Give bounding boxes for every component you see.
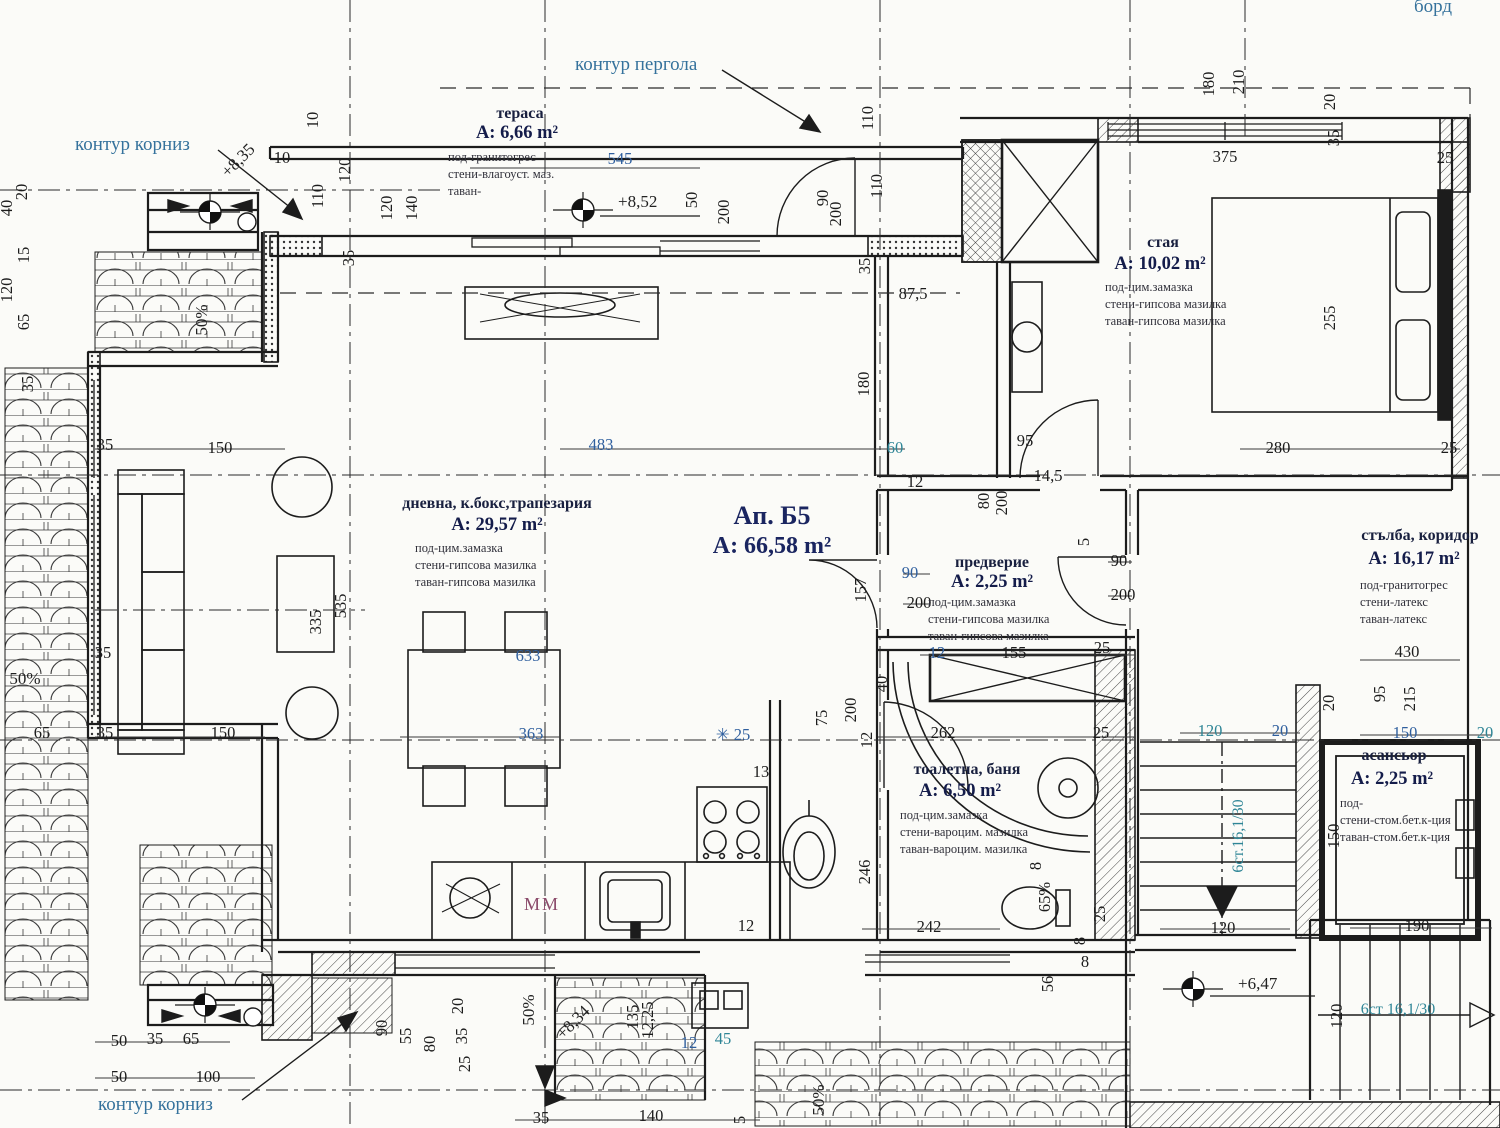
dimension-text: 8 — [1081, 952, 1089, 971]
room-area: A: 29,57 m² — [451, 515, 543, 535]
dimension-text: 157 — [851, 578, 870, 603]
room-finish: таван-гипсова мазилка — [928, 629, 1049, 643]
dimension-text: 65% — [1035, 882, 1054, 913]
room-area: A: 10,02 m² — [1114, 254, 1206, 274]
dimension-text: 20 — [448, 998, 467, 1015]
callout-label: контур корниз — [75, 134, 190, 155]
room-finish: под-цим.замазка — [415, 541, 503, 555]
dimension-text: 140 — [639, 1106, 664, 1125]
dimension-text: 12 — [738, 916, 755, 935]
dimension-text: 35 — [452, 1028, 471, 1045]
dimension-text: 25 — [1090, 906, 1109, 923]
dimension-text: 12,25 — [638, 1001, 657, 1038]
dimension-text: 5 — [730, 1116, 749, 1124]
dimension-text: 5 — [1074, 538, 1093, 546]
room-finish: таван-гипсова мазилка — [1105, 314, 1226, 328]
apartment-title: Ап. Б5 — [734, 501, 811, 530]
dimension-text: 20 — [1319, 695, 1338, 712]
room-name: асансьор — [1362, 747, 1427, 764]
dimension-text: 215 — [1400, 687, 1419, 712]
dimension-text: 20 — [1477, 723, 1494, 742]
room-name: дневна, к.бокс,трапезария — [402, 495, 592, 512]
dimension-text: 90 — [902, 563, 919, 582]
stair-note: 6ст.16,1/30 — [1230, 799, 1247, 872]
dimension-text: 483 — [589, 435, 614, 454]
dimension-text: 35 — [147, 1029, 164, 1048]
dimension-text: 200 — [714, 200, 733, 225]
dimension-text: 110 — [858, 106, 877, 130]
dimension-text: 545 — [608, 149, 633, 168]
floor-plan-sheet: Ап. Б5 — A: 66,58 m² — архитектурен план — [0, 0, 1500, 1128]
room-finish: стени-вароцим. мазилка — [900, 825, 1029, 839]
dimension-text: 25 — [1437, 148, 1454, 167]
dimension-text: 110 — [308, 184, 327, 208]
room-area: A: 2,25 m² — [1351, 769, 1434, 789]
dimension-text: 65 — [14, 314, 33, 331]
dimension-text: 210 — [1229, 70, 1248, 95]
dimension-text: 255 — [1320, 306, 1339, 331]
dimension-text: 120 — [0, 278, 16, 303]
dimension-text: 75 — [812, 710, 831, 727]
room-finish: стени-влагоуст. маз. — [448, 167, 554, 181]
apartment-area: A: 66,58 m² — [713, 533, 832, 559]
dimension-text: 50 — [111, 1031, 128, 1050]
dimension-text: 15 — [14, 247, 33, 264]
callout-label: борд — [1414, 0, 1452, 17]
dimension-text: 200 — [1111, 585, 1136, 604]
dimension-text: 150 — [211, 723, 236, 742]
room-area: A: 6,50 m² — [919, 781, 1002, 801]
stair-note: 6ст 16,1/30 — [1361, 1001, 1436, 1018]
level-text: +6,47 — [1238, 974, 1278, 993]
dimension-text: 12 — [857, 732, 876, 749]
room-area: A: 16,17 m² — [1368, 549, 1460, 569]
floor-plan-drawing: Ап. Б5 — A: 66,58 m² — архитектурен план — [0, 0, 1500, 1128]
room-finish: таван-стом.бет.к-ция — [1340, 830, 1450, 844]
dimension-text: 80 — [974, 493, 993, 510]
room-finish: таван-латекс — [1360, 612, 1428, 626]
dimension-text: 200 — [826, 202, 845, 227]
dimension-text: 8 — [1026, 862, 1045, 870]
dimension-text: 35 — [1324, 130, 1343, 147]
dimension-text: 20 — [1272, 721, 1289, 740]
dimension-text: 10 — [274, 148, 291, 167]
dimension-text: 110 — [867, 174, 886, 198]
callout-label: контур пергола — [575, 54, 698, 75]
dimension-text: 35 — [339, 250, 358, 267]
dimension-text: 140 — [402, 196, 421, 221]
dimension-text: 35 — [97, 435, 114, 454]
room-finish: стени-гипсова мазилка — [928, 612, 1050, 626]
dimension-text: 10 — [303, 112, 322, 129]
slope-label: 50% — [192, 304, 211, 335]
dimension-text: 180 — [854, 372, 873, 397]
dimension-text: 87,5 — [899, 284, 928, 303]
room-finish: стени-стом.бет.к-ция — [1340, 813, 1451, 827]
dimension-text: 120 — [1327, 1004, 1346, 1029]
dimension-text: 335 — [306, 610, 325, 635]
dimension-text: 25 — [1093, 723, 1110, 742]
dimension-text: 535 — [331, 594, 350, 619]
room-name: тоалетна, баня — [914, 761, 1021, 778]
dimension-text: 262 — [931, 723, 956, 742]
dimension-text: 150 — [208, 438, 233, 457]
dimension-text: 65 — [183, 1029, 200, 1048]
room-finish: под-гранитогрес — [1360, 578, 1448, 592]
dimension-text: 50 — [111, 1067, 128, 1086]
dimension-text: 20 — [1320, 94, 1339, 111]
dimension-text: 363 — [519, 724, 544, 743]
dimension-text: 35 — [18, 376, 37, 393]
dimension-text: 8 — [1070, 937, 1089, 945]
dimension-text: 242 — [917, 917, 942, 936]
dimension-text: 12 — [681, 1033, 698, 1052]
dimension-text: 40 — [0, 200, 16, 217]
dimension-text: 375 — [1213, 147, 1238, 166]
dimension-text: 430 — [1395, 642, 1420, 661]
dimension-text: 35 — [533, 1108, 550, 1127]
dimension-text: 200 — [841, 698, 860, 723]
dimension-text: 13 — [753, 762, 770, 781]
level-text: +8,52 — [618, 192, 657, 211]
dimension-text: 200 — [992, 491, 1011, 516]
dimension-text: 155 — [1002, 643, 1027, 662]
room-area: A: 6,66 m² — [476, 123, 559, 143]
room-finish: стени-латекс — [1360, 595, 1428, 609]
dimension-text: 150 — [1393, 723, 1418, 742]
room-finish: под-цим.замазка — [900, 808, 988, 822]
dimension-text: 45 — [715, 1029, 732, 1048]
dimension-text: 50 — [682, 192, 701, 209]
dimension-text: 35 — [95, 643, 112, 662]
room-name: предверие — [955, 554, 1029, 571]
dimension-text: 120 — [1211, 918, 1236, 937]
dimension-text: 55 — [396, 1028, 415, 1045]
equipment-label: MM — [524, 894, 560, 914]
dimension-text: 60 — [887, 438, 904, 457]
dimension-text: 120 — [377, 196, 396, 221]
room-finish: таван-вароцим. мазилка — [900, 842, 1028, 856]
dimension-text: 90 — [1111, 551, 1128, 570]
slope-label: 50% — [519, 994, 538, 1025]
dimension-text: 12 — [929, 643, 946, 662]
dimension-text: 633 — [516, 646, 541, 665]
room-finish: таван-гипсова мазилка — [415, 575, 536, 589]
dimension-text: 25 — [455, 1056, 474, 1073]
room-finish: таван- — [448, 184, 481, 198]
dimension-text: 100 — [196, 1067, 221, 1086]
room-name: стая — [1147, 234, 1179, 251]
dimension-text: 12 — [907, 472, 924, 491]
dimension-text: 35 — [855, 258, 874, 275]
dimension-text: 40 — [872, 676, 891, 693]
room-finish: под-гранитогрес — [448, 150, 536, 164]
room-finish: под-цим.замазка — [1105, 280, 1193, 294]
dimension-text: ✳ 25 — [716, 725, 750, 744]
slope-label: 50% — [9, 669, 40, 688]
dimension-text: 190 — [1405, 916, 1430, 935]
room-area: A: 2,25 m² — [951, 572, 1034, 592]
dimension-text: 25 — [1441, 438, 1458, 457]
dimension-text: 80 — [420, 1036, 439, 1053]
dimension-text: 25 — [1094, 638, 1111, 657]
dimension-text: 180 — [1199, 72, 1218, 97]
dimension-text: 280 — [1266, 438, 1291, 457]
dimension-text: 56 — [1038, 976, 1057, 993]
room-name: тераса — [496, 105, 543, 122]
dimension-text: 120 — [335, 158, 354, 183]
oven-handle — [631, 922, 640, 938]
dimension-text: 35 — [97, 723, 114, 742]
room-finish: под-цим.замазка — [928, 595, 1016, 609]
callout-label: контур корниз — [98, 1094, 213, 1115]
dimension-text: 246 — [855, 860, 874, 885]
dimension-text: 95 — [1017, 431, 1034, 450]
dimension-text: 95 — [1370, 686, 1389, 703]
room-finish: под- — [1340, 796, 1363, 810]
dimension-text: 65 — [34, 723, 51, 742]
dimension-text: 20 — [12, 184, 31, 201]
dimension-text: 120 — [1198, 721, 1223, 740]
room-finish: стени-гипсова мазилка — [1105, 297, 1227, 311]
room-finish: стени-гипсова мазилка — [415, 558, 537, 572]
room-name: стълба, коридор — [1361, 527, 1478, 544]
dimension-text: 90 — [372, 1020, 391, 1037]
slope-label: 50% — [809, 1084, 828, 1115]
dimension-text: 14,5 — [1034, 466, 1063, 485]
